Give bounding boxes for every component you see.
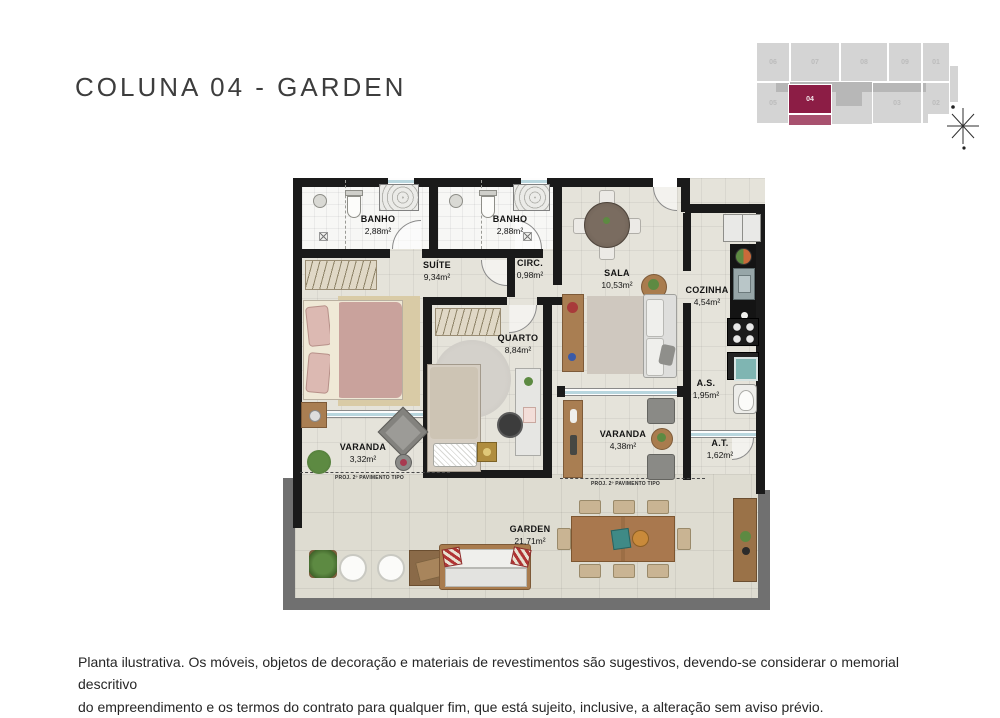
suite-nightstand bbox=[301, 402, 327, 428]
round-dining-table bbox=[584, 202, 630, 248]
unit-07-label: 07 bbox=[811, 59, 819, 66]
garden-plant-icon bbox=[309, 550, 337, 578]
bed-blanket bbox=[336, 302, 402, 398]
floor-plan: PROJ. 2º PAVIMENTO TIPO PROJ. 2º PAVIMEN… bbox=[283, 168, 777, 618]
bath1-sink-icon bbox=[313, 194, 327, 208]
fridge bbox=[723, 214, 761, 242]
room-label-garden: GARDEN 21,71m² bbox=[475, 524, 585, 547]
bed-pillow bbox=[433, 443, 477, 467]
sofa-seat-cushions bbox=[445, 568, 527, 587]
room-name: VARANDA bbox=[308, 442, 418, 454]
fridge-divider bbox=[742, 215, 743, 241]
lamp-icon bbox=[309, 410, 321, 422]
unit-01-label: 01 bbox=[932, 59, 940, 66]
room-label-varanda-suite: VARANDA 3,32m² bbox=[308, 442, 418, 465]
projection-label-left: PROJ. 2º PAVIMENTO TIPO bbox=[335, 475, 404, 481]
room-name: A.S. bbox=[651, 378, 761, 390]
bed-sheet-fold bbox=[330, 302, 339, 398]
room-area: 3,32m² bbox=[308, 454, 418, 465]
room-name: BANHO bbox=[323, 214, 433, 226]
bed-pillow bbox=[305, 305, 332, 347]
wall-sala-varanda-cap-left bbox=[557, 386, 565, 397]
key-plan-unit-05: 05 bbox=[756, 82, 790, 124]
garden-dining-chair bbox=[613, 500, 635, 514]
sala-rug bbox=[587, 296, 643, 374]
quarto-wardrobe bbox=[435, 308, 501, 336]
unit-06-label: 06 bbox=[769, 59, 777, 66]
garden-dining-chair bbox=[579, 500, 601, 514]
projection-label-right: PROJ. 2º PAVIMENTO TIPO bbox=[591, 481, 660, 487]
key-plan-building-bump bbox=[950, 66, 958, 102]
stove-burners bbox=[728, 319, 758, 345]
double-bed bbox=[303, 300, 403, 400]
single-bed bbox=[427, 364, 481, 472]
wall-cozinha-left-lower bbox=[683, 303, 691, 350]
garden-dining-chair bbox=[613, 564, 635, 578]
garden-dining-chair bbox=[647, 500, 669, 514]
unit-02-label: 02 bbox=[932, 100, 940, 107]
room-label-at: A.T. 1,62m² bbox=[665, 438, 775, 461]
desk-chair bbox=[497, 412, 523, 438]
room-area: 2,88m² bbox=[455, 226, 565, 237]
key-plan-unit-08: 08 bbox=[840, 42, 888, 82]
page: { "page": { "title": "COLUNA 04 - GARDEN… bbox=[0, 0, 1000, 707]
garden-pouf bbox=[339, 554, 367, 582]
suite-wardrobe bbox=[305, 260, 377, 290]
compass-icon bbox=[940, 100, 986, 154]
disclaimer-line1: Planta ilustrativa. Os móveis, objetos d… bbox=[78, 651, 958, 696]
garden-wall-right bbox=[758, 490, 770, 610]
garden-sofa bbox=[439, 544, 531, 590]
table-plant-icon bbox=[603, 217, 610, 224]
room-area: 1,62m² bbox=[665, 450, 775, 461]
key-plan-unit-03: 03 bbox=[872, 82, 922, 124]
desk bbox=[515, 368, 541, 456]
desk-plant-icon bbox=[524, 377, 533, 386]
room-area: 8,84m² bbox=[463, 345, 573, 356]
garden-dining-table bbox=[571, 516, 675, 562]
bench-vase bbox=[570, 409, 577, 423]
room-name: VARANDA bbox=[568, 429, 678, 441]
varanda-armchair bbox=[647, 398, 675, 424]
garden-dining-chair bbox=[677, 528, 691, 550]
key-plan-unit-04-highlighted: 04 bbox=[788, 84, 832, 114]
room-label-cozinha: COZINHA 4,54m² bbox=[652, 285, 762, 308]
wall-top bbox=[293, 178, 685, 187]
unit-04-label: 04 bbox=[806, 96, 814, 103]
bath2-shower-icon bbox=[513, 184, 550, 211]
bath1-shower-icon bbox=[379, 184, 419, 211]
room-name: COZINHA bbox=[652, 285, 762, 297]
room-area: 4,54m² bbox=[652, 297, 762, 308]
quarto-side-table bbox=[477, 442, 497, 462]
wall-under-bath1 bbox=[293, 249, 390, 258]
unit-09-label: 09 bbox=[901, 59, 909, 66]
table-decor-tray bbox=[632, 530, 649, 547]
room-name: GARDEN bbox=[475, 524, 585, 536]
stove-icon bbox=[727, 318, 759, 346]
garden-dining-chair bbox=[579, 564, 601, 578]
room-name: A.T. bbox=[665, 438, 775, 450]
key-plan-unit-09: 09 bbox=[888, 42, 922, 82]
room-area: 1,95m² bbox=[651, 390, 761, 401]
plant-icon bbox=[740, 531, 751, 542]
room-area: 21,71m² bbox=[475, 536, 585, 547]
window-as-at bbox=[691, 430, 756, 438]
room-area: 2,88m² bbox=[323, 226, 433, 237]
wall-left bbox=[293, 178, 302, 528]
room-label-quarto: QUARTO 8,84m² bbox=[463, 333, 573, 356]
key-plan-unit-07: 07 bbox=[790, 42, 840, 82]
key-plan-unit-01: 01 bbox=[922, 42, 950, 82]
table-decor-teal bbox=[611, 528, 632, 550]
sofa-throw bbox=[658, 344, 676, 366]
wall-kitchen-top bbox=[685, 204, 765, 213]
room-area: 4,38m² bbox=[568, 441, 678, 452]
disclaimer: Planta ilustrativa. Os móveis, objetos d… bbox=[78, 651, 958, 718]
bath2-sink-icon bbox=[449, 194, 463, 208]
room-label-banho2: BANHO 2,88m² bbox=[455, 214, 565, 237]
desk-paper bbox=[523, 407, 536, 423]
sideboard-decor bbox=[742, 547, 750, 555]
room-label-as: A.S. 1,95m² bbox=[651, 378, 761, 401]
counter-decor bbox=[735, 248, 752, 265]
washing-machine-icon bbox=[727, 352, 759, 380]
side-table-decor bbox=[483, 448, 491, 456]
projection-line-right bbox=[560, 478, 705, 479]
wall-quarto-top-stub bbox=[537, 297, 562, 305]
garden-dining-chair bbox=[647, 564, 669, 578]
rack-decor-red bbox=[567, 302, 578, 313]
garden-sideboard bbox=[733, 498, 757, 582]
garden-pouf bbox=[377, 554, 405, 582]
garden-wall-bottom bbox=[283, 598, 770, 610]
entry-door-gap bbox=[653, 178, 677, 187]
room-name: BANHO bbox=[455, 214, 565, 226]
wall-quarto-top bbox=[423, 297, 507, 305]
unit-08-label: 08 bbox=[860, 59, 868, 66]
room-label-banho1: BANHO 2,88m² bbox=[323, 214, 433, 237]
bed-pillow bbox=[305, 352, 331, 394]
unit-05-label: 05 bbox=[769, 100, 777, 107]
room-name: QUARTO bbox=[463, 333, 573, 345]
key-plan-unit-04-balcony-strip bbox=[788, 114, 832, 126]
wall-cozinha-left-upper bbox=[683, 213, 691, 271]
key-plan-lobby bbox=[836, 82, 862, 106]
key-plan-unit-06: 06 bbox=[756, 42, 790, 82]
room-label-varanda-sala: VARANDA 4,38m² bbox=[568, 429, 678, 452]
sofa-pillow-striped bbox=[442, 547, 463, 568]
room-name: SALA bbox=[562, 268, 672, 280]
building-key-plan: 06 07 08 09 01 05 03 02 04 bbox=[748, 36, 960, 136]
page-title: COLUNA 04 - GARDEN bbox=[75, 72, 406, 103]
wall-under-bath2 bbox=[422, 249, 543, 258]
unit-03-label: 03 bbox=[893, 100, 901, 107]
sofa-pillow-striped bbox=[510, 546, 531, 567]
bed-blanket bbox=[430, 367, 478, 439]
wall-quarto-right bbox=[543, 305, 552, 478]
